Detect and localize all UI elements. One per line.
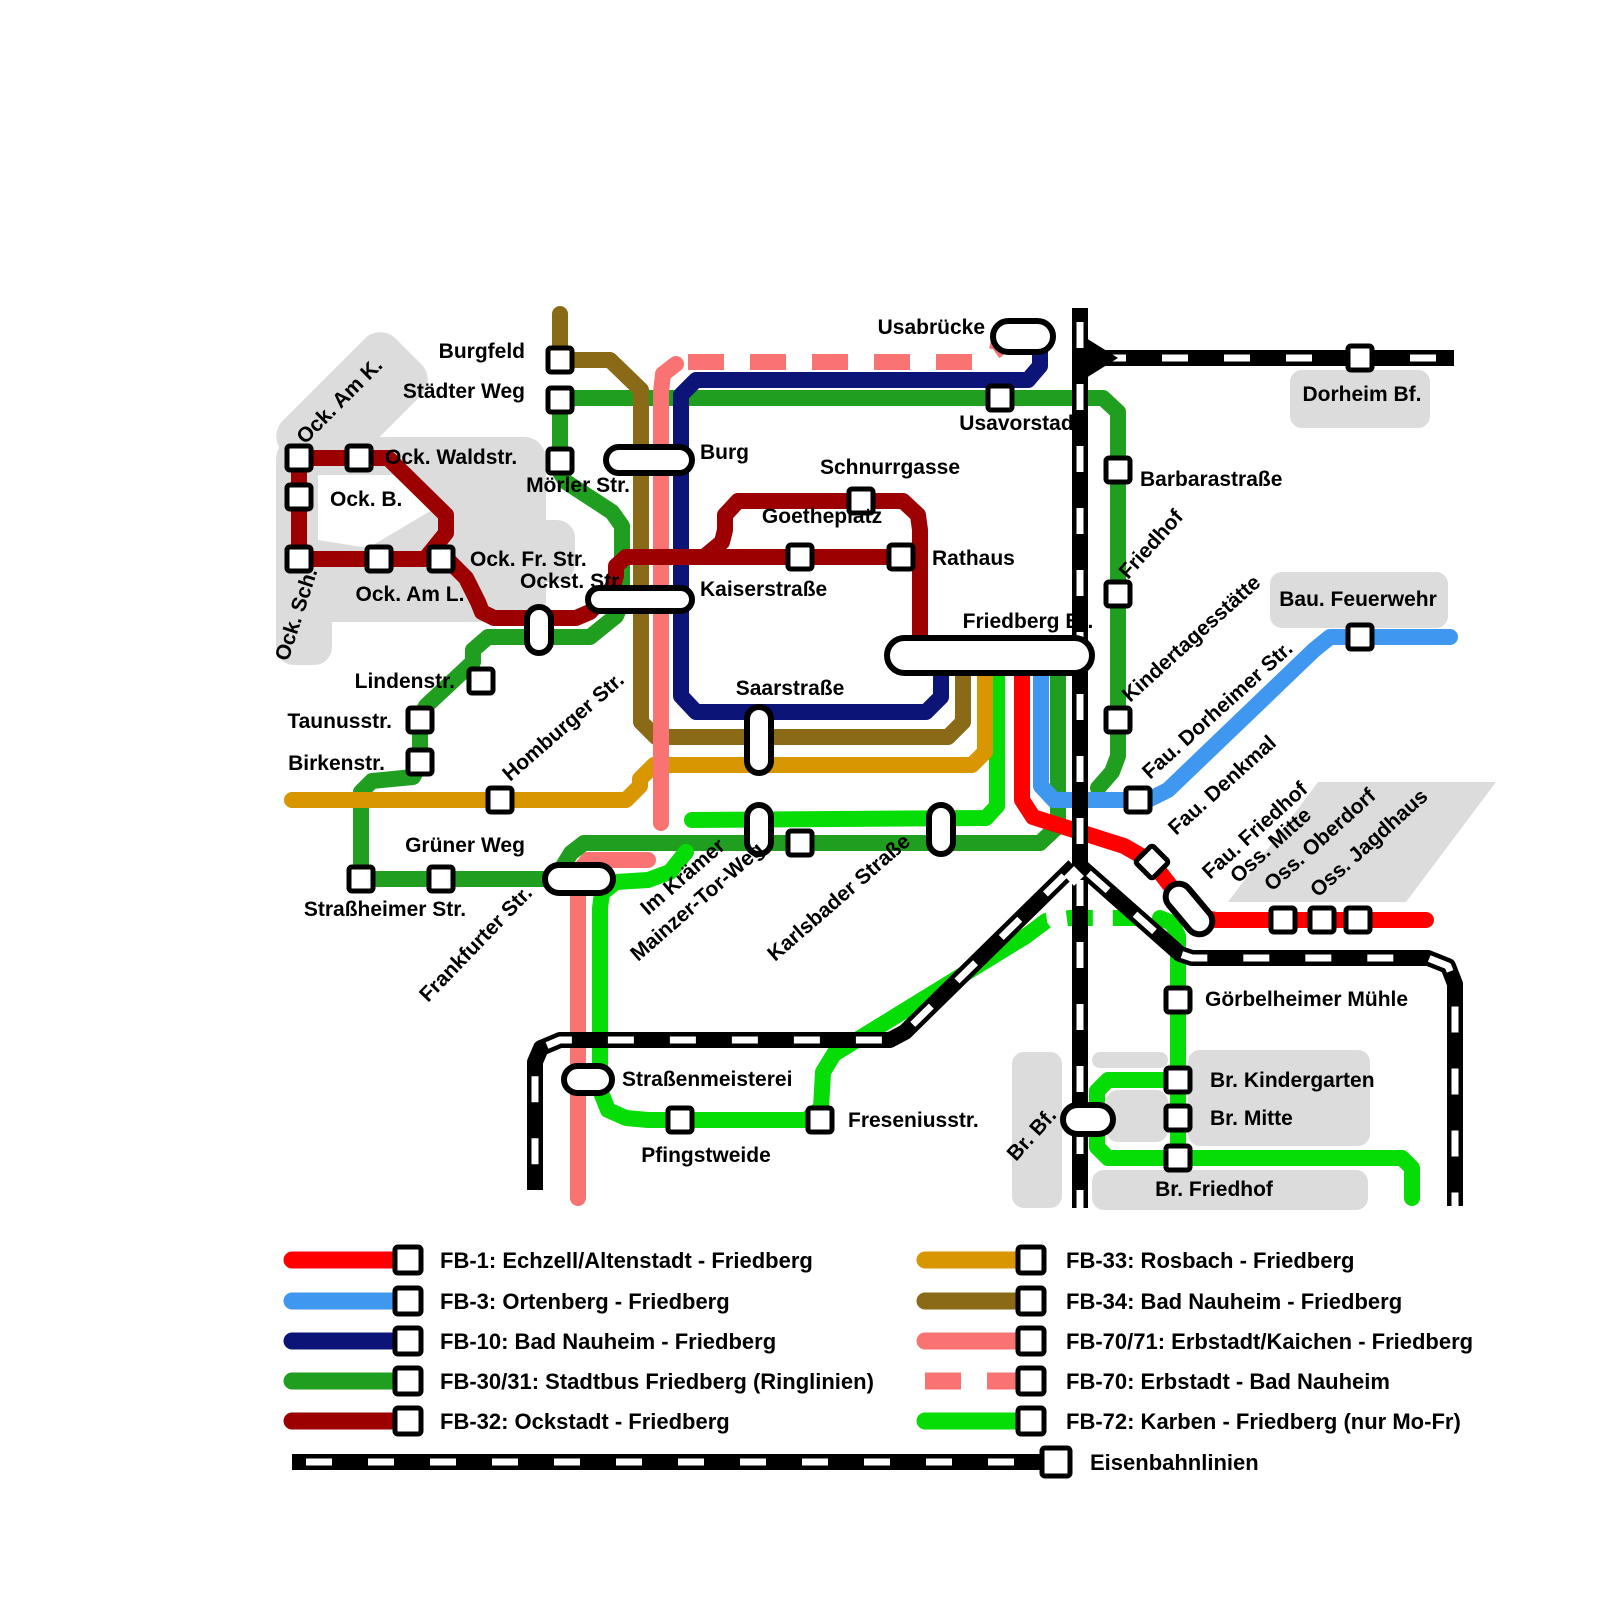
station-br-friedhof [1166,1146,1190,1170]
label-staedter-weg: Städter Weg [403,380,525,403]
legend-label-fb-10: FB-10: Bad Nauheim - Friedberg [440,1329,776,1354]
station-oss-mitte [1271,908,1295,932]
legend-marker-eisenbahn [1042,1448,1070,1476]
label-goetheplatz: Goetheplatz [762,505,882,528]
station-gruener-weg [429,867,453,891]
station-ock-am-k [287,446,311,470]
label-birkenstr: Birkenstr. [288,752,385,775]
station-bau-feuerwehr [1348,625,1372,649]
station-goetheplatz [788,545,812,569]
station-pill-saarstrasse [747,707,771,773]
station-lindenstr [469,669,493,693]
label-ock-fr-str: Ock. Fr. Str. [470,548,587,571]
label-strassenmeisterei: Straßenmeisterei [622,1068,792,1091]
station-burgfeld [548,348,572,372]
label-usabruecke: Usabrücke [878,316,985,339]
label-freseniusstr: Freseniusstr. [848,1109,979,1132]
legend-marker-fb-30-31 [395,1368,421,1394]
label-ock-waldstr: Ock. Waldstr. [385,446,517,469]
label-gruener-weg: Grüner Weg [405,834,525,857]
station-ock-fr-str [429,547,453,571]
legend-label-fb-1: FB-1: Echzell/Altenstadt - Friedberg [440,1248,813,1273]
label-saarstrasse: Saarstraße [736,677,845,700]
station-oss-oberdorf [1310,908,1334,932]
label-br-mitte: Br. Mitte [1210,1107,1293,1130]
legend-label-fb-70: FB-70: Erbstadt - Bad Nauheim [1066,1369,1390,1394]
legend-marker-fb-34 [1018,1288,1044,1314]
label-lindenstr: Lindenstr. [355,670,455,693]
station-pill-br-bf [1063,1105,1113,1134]
legend-label-fb-3: FB-3: Ortenberg - Friedberg [440,1289,730,1314]
label-pfingstweide: Pfingstweide [641,1144,771,1167]
legend-label-fb-30-31: FB-30/31: Stadtbus Friedberg (Ringlinien… [440,1369,874,1394]
station-taunusstr [408,708,432,732]
station-dorheim-bf [1348,346,1372,370]
label-br-kindergarten: Br. Kindergarten [1210,1069,1375,1092]
station-ock-b [287,485,311,509]
station-ock-waldstr [347,446,371,470]
station-usavorstadt [988,386,1012,410]
legend-marker-fb-33 [1018,1247,1044,1273]
label-burg: Burg [700,441,749,464]
legend-marker-fb-72 [1018,1408,1044,1434]
station-pill-strassenmeisterei [564,1066,612,1093]
area-br-strip-box [1092,1052,1168,1068]
label-br-friedhof: Br. Friedhof [1155,1178,1274,1201]
legend-label-fb-32: FB-32: Ockstadt - Friedberg [440,1409,730,1434]
label-ock-b: Ock. B. [330,488,402,511]
station-staedter-weg [548,388,572,412]
station-pill-karlsbader-strasse [929,805,953,854]
label-taunusstr: Taunusstr. [287,710,392,733]
station-pill-usabruecke [993,321,1053,352]
station-strassheimer-str [349,867,373,891]
label-barbarastrasse: Barbarastraße [1140,468,1282,491]
label-bau-feuerwehr: Bau. Feuerwehr [1279,588,1437,611]
legend-marker-fb-32 [395,1408,421,1434]
station-br-mitte [1166,1106,1190,1130]
station-barbarastrasse [1106,458,1130,482]
station-homburger-str [488,788,512,812]
station-pill-burg [606,447,692,473]
station-pill-frankfurter-str [545,865,613,893]
station-oss-jagdhaus [1346,908,1370,932]
legend-label-fb-72: FB-72: Karben - Friedberg (nur Mo-Fr) [1066,1409,1461,1434]
transit-map-stage: BurgfeldStädter WegUsabrückeUsavorstadtD… [0,0,1600,1600]
legend-label-eisenbahn: Eisenbahnlinien [1090,1450,1259,1475]
label-goerbelheimer-muehle: Görbelheimer Mühle [1205,988,1408,1011]
station-kindertagesstaette [1106,708,1130,732]
label-strassheimer-str: Straßheimer Str. [304,898,466,921]
station-birkenstr [408,750,432,774]
label-ockst-str: Ockst. Str. [520,570,624,593]
label-kaiserstrasse: Kaiserstraße [700,578,827,601]
station-ock-am-l [367,547,391,571]
label-ock-am-l: Ock. Am L. [356,583,465,606]
station-friedhof [1106,582,1130,606]
legend-label-fb-70-71: FB-70/71: Erbstadt/Kaichen - Friedberg [1066,1329,1473,1354]
station-moerler-str [548,449,572,473]
station-pill-friedberg-bf [887,638,1092,673]
legend-marker-fb-70-71 [1018,1328,1044,1354]
legend-marker-fb-3 [395,1288,421,1314]
label-moerler-str: Mörler Str. [526,474,630,497]
station-pfingstweide [668,1108,692,1132]
legend-label-fb-33: FB-33: Rosbach - Friedberg [1066,1248,1354,1273]
legend-label-fb-34: FB-34: Bad Nauheim - Friedberg [1066,1289,1402,1314]
station-br-kindergarten [1166,1068,1190,1092]
legend-marker-fb-70 [1018,1368,1044,1394]
label-dorheim-bf: Dorheim Bf. [1302,383,1421,406]
station-freseniusstr [808,1108,832,1132]
label-schnurrgasse: Schnurrgasse [820,456,960,479]
station-fau-dorheimer-str [1126,788,1150,812]
label-friedberg-bf: Friedberg Bf. [963,610,1094,633]
legend-marker-fb-10 [395,1328,421,1354]
label-usavorstadt: Usavorstadt [959,412,1080,435]
station-goerbelheimer-muehle [1166,988,1190,1012]
label-rathaus: Rathaus [932,547,1015,570]
station-rathaus [889,545,913,569]
transit-map-svg: BurgfeldStädter WegUsabrückeUsavorstadtD… [0,0,1600,1600]
area-br-mitte-box [1188,1050,1370,1146]
station-pill-ockst-str [527,607,551,653]
legend-marker-fb-1 [395,1247,421,1273]
station-mainzer-tor-weg [788,831,812,855]
label-burgfeld: Burgfeld [439,340,525,363]
